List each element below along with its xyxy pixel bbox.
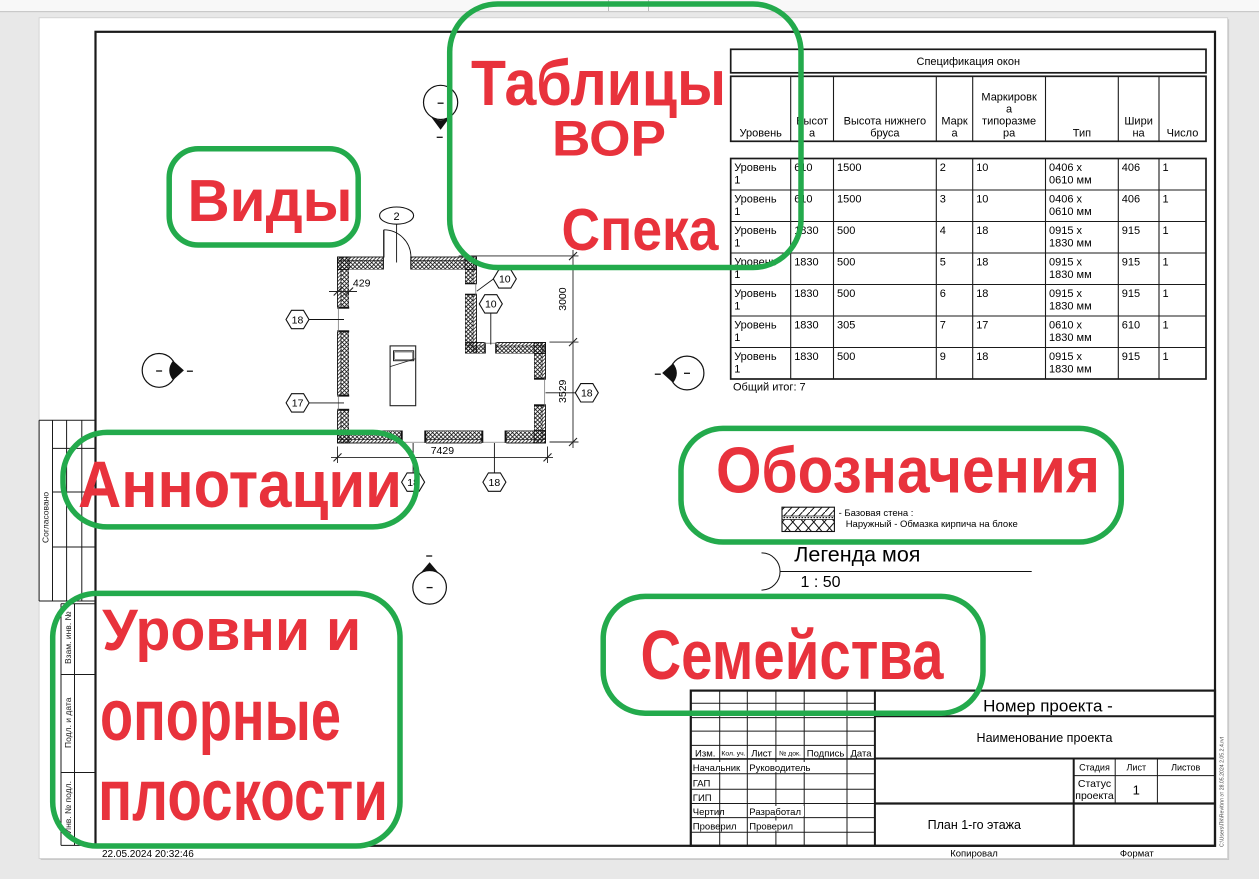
svg-text:Уровень: Уровень bbox=[734, 351, 777, 363]
svg-text:Виды: Виды bbox=[188, 168, 353, 234]
svg-text:Спека: Спека bbox=[562, 197, 720, 263]
svg-text:опорные: опорные bbox=[100, 676, 341, 756]
svg-text:Уровень: Уровень bbox=[734, 193, 777, 205]
svg-text:18: 18 bbox=[292, 314, 304, 326]
svg-text:10: 10 bbox=[485, 299, 497, 311]
svg-text:2: 2 bbox=[394, 211, 400, 223]
svg-text:1500: 1500 bbox=[837, 193, 861, 205]
svg-text:915: 915 bbox=[1122, 256, 1140, 268]
svg-text:5: 5 bbox=[940, 256, 946, 268]
svg-text:ГАП: ГАП bbox=[693, 778, 711, 789]
svg-text:1: 1 bbox=[734, 363, 740, 375]
svg-text:1830: 1830 bbox=[794, 351, 818, 363]
svg-text:18: 18 bbox=[976, 288, 988, 300]
svg-text:1: 1 bbox=[1163, 162, 1169, 174]
svg-text:Формат: Формат bbox=[1120, 849, 1154, 860]
svg-text:4: 4 bbox=[940, 225, 946, 237]
svg-text:Листов: Листов bbox=[1171, 762, 1200, 772]
svg-text:10: 10 bbox=[976, 193, 988, 205]
svg-text:0406 x: 0406 x bbox=[1049, 193, 1083, 205]
svg-text:Шири: Шири bbox=[1124, 116, 1153, 128]
svg-text:0915 x: 0915 x bbox=[1049, 225, 1083, 237]
svg-text:1830 мм: 1830 мм bbox=[1049, 300, 1092, 312]
svg-text:1830: 1830 bbox=[794, 319, 818, 331]
svg-text:Чертил: Чертил bbox=[693, 807, 725, 818]
svg-text:500: 500 bbox=[837, 351, 855, 363]
svg-text:Наименование проекта: Наименование проекта bbox=[977, 731, 1113, 745]
svg-text:ВОР: ВОР bbox=[552, 110, 666, 166]
svg-text:1830 мм: 1830 мм bbox=[1049, 332, 1092, 344]
svg-text:18: 18 bbox=[581, 388, 593, 400]
svg-text:Номер проекта -: Номер проекта - bbox=[983, 697, 1113, 716]
svg-text:Инв. № подл.: Инв. № подл. bbox=[63, 781, 73, 834]
svg-text:Статус: Статус bbox=[1078, 778, 1111, 790]
svg-text:Начальник: Начальник bbox=[693, 763, 741, 774]
svg-text:Изм.: Изм. bbox=[695, 748, 715, 759]
svg-text:Уровни и: Уровни и bbox=[102, 598, 361, 663]
svg-text:9: 9 bbox=[940, 351, 946, 363]
svg-text:3000: 3000 bbox=[557, 287, 569, 311]
svg-text:Легенда моя: Легенда моя bbox=[794, 543, 920, 567]
svg-text:Подл. и дата: Подл. и дата bbox=[63, 697, 73, 748]
svg-text:1: 1 bbox=[734, 237, 740, 249]
svg-text:Общий итог: 7: Общий итог: 7 bbox=[733, 382, 806, 394]
svg-text:10: 10 bbox=[499, 274, 511, 286]
svg-text:18: 18 bbox=[976, 351, 988, 363]
svg-text:500: 500 bbox=[837, 288, 855, 300]
svg-text:0406 x: 0406 x bbox=[1049, 162, 1083, 174]
svg-text:плоскости: плоскости bbox=[98, 756, 388, 836]
svg-text:Руководитель: Руководитель bbox=[749, 763, 810, 774]
svg-text:18: 18 bbox=[976, 256, 988, 268]
svg-text:Высота нижнего: Высота нижнего bbox=[844, 116, 927, 128]
svg-text:0915 x: 0915 x bbox=[1049, 351, 1083, 363]
svg-text:Число: Число bbox=[1167, 128, 1199, 140]
svg-text:на: на bbox=[1132, 128, 1145, 140]
svg-text:22.05.2024 20:32:46: 22.05.2024 20:32:46 bbox=[102, 849, 194, 860]
svg-text:№ док.: № док. bbox=[779, 751, 801, 758]
svg-text:1: 1 bbox=[734, 269, 740, 281]
svg-text:0610 мм: 0610 мм bbox=[1049, 206, 1092, 218]
svg-text:429: 429 bbox=[353, 277, 371, 289]
svg-text:10: 10 bbox=[976, 162, 988, 174]
svg-text:Кол. уч.: Кол. уч. bbox=[721, 751, 745, 758]
svg-text:2: 2 bbox=[940, 162, 946, 174]
svg-text:Копировал: Копировал bbox=[950, 849, 998, 860]
svg-text:1830: 1830 bbox=[794, 288, 818, 300]
svg-text:610: 610 bbox=[1122, 319, 1140, 331]
svg-text:0915 x: 0915 x bbox=[1049, 288, 1083, 300]
svg-text:Тип: Тип bbox=[1073, 128, 1091, 140]
svg-text:915: 915 bbox=[1122, 225, 1140, 237]
svg-text:1500: 1500 bbox=[837, 162, 861, 174]
svg-text:500: 500 bbox=[837, 225, 855, 237]
svg-text:1: 1 bbox=[1163, 193, 1169, 205]
svg-text:Лист: Лист bbox=[751, 748, 772, 759]
svg-text:ГИП: ГИП bbox=[693, 793, 712, 804]
svg-text:17: 17 bbox=[976, 319, 988, 331]
svg-text:1830 мм: 1830 мм bbox=[1049, 363, 1092, 375]
svg-text:Маркировк: Маркировк bbox=[981, 92, 1037, 104]
svg-text:3529: 3529 bbox=[557, 379, 569, 403]
svg-text:1: 1 bbox=[1133, 782, 1140, 797]
svg-text:План 1-го этажа: План 1-го этажа bbox=[928, 818, 1021, 832]
svg-text:18: 18 bbox=[489, 477, 501, 489]
svg-text:1: 1 bbox=[1163, 288, 1169, 300]
svg-text:1830 мм: 1830 мм bbox=[1049, 269, 1092, 281]
svg-text:а: а bbox=[1006, 104, 1013, 116]
svg-text:1 : 50: 1 : 50 bbox=[801, 574, 841, 591]
svg-text:406: 406 bbox=[1122, 162, 1140, 174]
svg-text:Лист: Лист bbox=[1127, 762, 1147, 772]
svg-text:0610 x: 0610 x bbox=[1049, 319, 1083, 331]
svg-text:1: 1 bbox=[1163, 225, 1169, 237]
svg-text:бруса: бруса bbox=[870, 128, 900, 140]
svg-text:1: 1 bbox=[734, 300, 740, 312]
svg-text:1: 1 bbox=[734, 174, 740, 186]
svg-text:Наружный - Обмазка кирпича на: Наружный - Обмазка кирпича на блоке bbox=[846, 519, 1018, 530]
svg-text:Разработал: Разработал bbox=[749, 807, 801, 818]
svg-text:1: 1 bbox=[734, 206, 740, 218]
svg-text:17: 17 bbox=[292, 398, 304, 410]
svg-text:7: 7 bbox=[940, 319, 946, 331]
svg-text:Подпись: Подпись bbox=[807, 748, 845, 759]
svg-text:Уровень: Уровень bbox=[734, 162, 777, 174]
svg-text:Уровень: Уровень bbox=[734, 288, 777, 300]
svg-text:Согласовано: Согласовано bbox=[41, 492, 51, 543]
svg-text:305: 305 bbox=[837, 319, 855, 331]
svg-text:1830 мм: 1830 мм bbox=[1049, 237, 1092, 249]
svg-text:3: 3 bbox=[940, 193, 946, 205]
svg-text:915: 915 bbox=[1122, 351, 1140, 363]
svg-text:а: а bbox=[951, 128, 958, 140]
svg-text:Уровень: Уровень bbox=[734, 319, 777, 331]
svg-text:Марк: Марк bbox=[941, 116, 968, 128]
svg-text:проекта: проекта bbox=[1075, 790, 1114, 802]
svg-text:1: 1 bbox=[734, 332, 740, 344]
svg-text:Проверил: Проверил bbox=[693, 822, 737, 833]
svg-text:6: 6 bbox=[940, 288, 946, 300]
svg-text:C:\Users\ПК\Revit\пл эт 28.05.: C:\Users\ПК\Revit\пл эт 28.05.2024 2.05.… bbox=[1220, 736, 1226, 847]
svg-text:Уровень: Уровень bbox=[740, 128, 783, 140]
svg-text:Обозначения: Обозначения bbox=[716, 433, 1100, 506]
svg-text:Таблицы: Таблицы bbox=[471, 47, 726, 119]
svg-text:1830: 1830 bbox=[794, 256, 818, 268]
svg-text:915: 915 bbox=[1122, 288, 1140, 300]
svg-text:Дата: Дата bbox=[850, 748, 872, 759]
svg-text:ра: ра bbox=[1003, 128, 1016, 140]
svg-text:Аннотации: Аннотации bbox=[78, 447, 402, 521]
svg-text:0915 x: 0915 x bbox=[1049, 256, 1083, 268]
svg-text:Стадия: Стадия bbox=[1079, 762, 1110, 772]
svg-text:0610 мм: 0610 мм bbox=[1049, 174, 1092, 186]
svg-text:а: а bbox=[809, 128, 816, 140]
svg-text:500: 500 bbox=[837, 256, 855, 268]
svg-text:Спецификация окон: Спецификация окон bbox=[917, 56, 1021, 68]
svg-text:406: 406 bbox=[1122, 193, 1140, 205]
svg-text:18: 18 bbox=[976, 225, 988, 237]
svg-text:1: 1 bbox=[1163, 351, 1169, 363]
svg-text:Проверил: Проверил bbox=[749, 822, 793, 833]
svg-text:Семейства: Семейства bbox=[641, 616, 945, 694]
svg-text:7429: 7429 bbox=[431, 445, 455, 457]
svg-text:1: 1 bbox=[1163, 256, 1169, 268]
svg-text:Взам. инв. №: Взам. инв. № bbox=[63, 611, 73, 664]
svg-text:Уровень: Уровень bbox=[734, 225, 777, 237]
svg-text:типоразме: типоразме bbox=[982, 116, 1036, 128]
svg-text:- Базовая стена :: - Базовая стена : bbox=[839, 508, 914, 519]
svg-text:1: 1 bbox=[1163, 319, 1169, 331]
